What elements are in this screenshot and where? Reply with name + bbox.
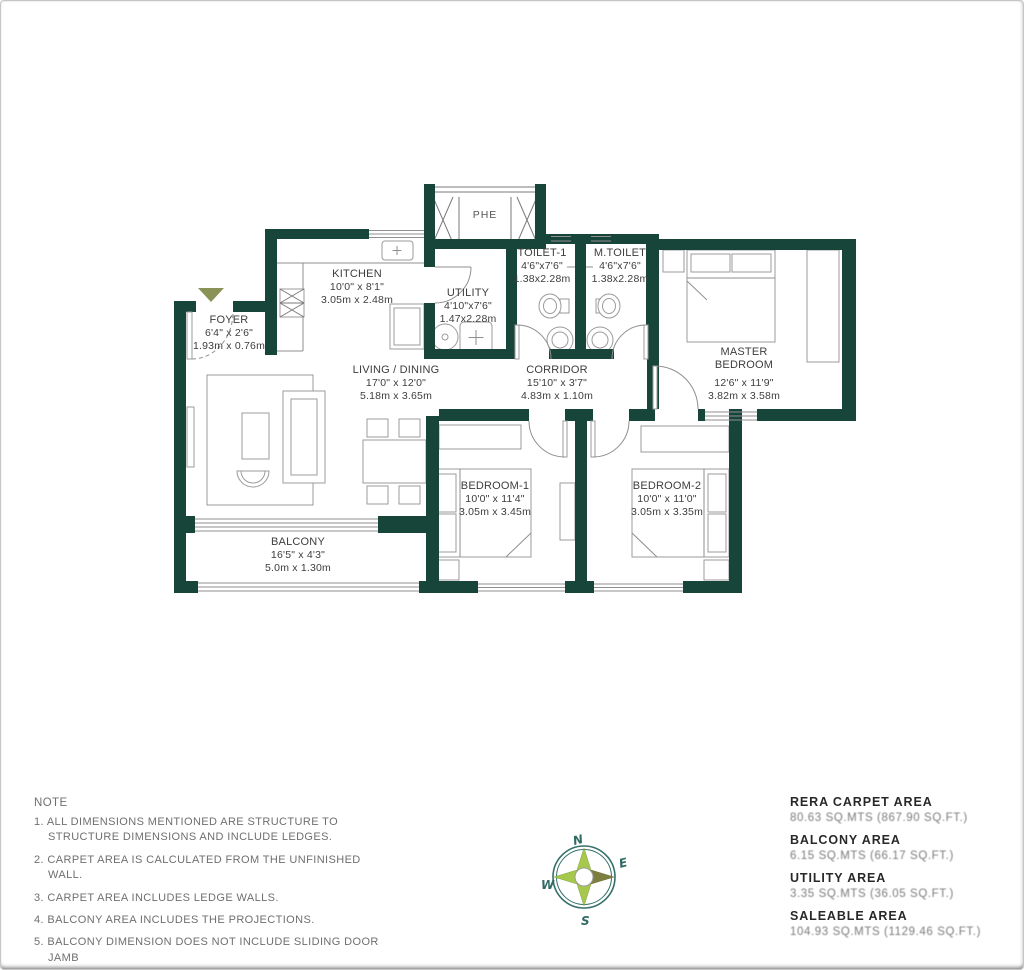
bedroom2-window: [594, 584, 683, 591]
room-label-utility: UTILITY 4'10"x7'6" 1.47x2.28m: [440, 287, 497, 326]
wardrobe: [641, 426, 729, 452]
shaft-label: PHE: [473, 209, 498, 221]
master-door: [655, 366, 698, 409]
room-label-living-dining: LIVING / DINING 17'0" x 12'0" 5.18m x 3.…: [353, 364, 440, 403]
room-label-foyer: FOYER 6'4" x 2'6" 1.93m x 0.76m: [193, 314, 265, 353]
room-label-bedroom1: BEDROOM-1 10'0" x 11'4" 3.05m x 3.45m: [459, 480, 531, 519]
sofa: [283, 391, 325, 483]
bedroom1-door: [529, 421, 565, 457]
side-table: [663, 250, 684, 272]
area-value-rera-carpet: 80.63 SQ.MTS (867.90 SQ.FT.): [790, 812, 1016, 824]
notes-block: NOTE 1. ALL DIMENSIONS MENTIONED ARE STR…: [34, 797, 386, 970]
area-label-balcony: BALCONY AREA: [790, 833, 1016, 847]
kitchen-window: [369, 231, 424, 238]
room-label-kitchen: KITCHEN 10'0" x 8'1" 3.05m x 2.48m: [321, 268, 393, 307]
wardrobe: [439, 425, 521, 449]
compass-west-label: W: [541, 878, 555, 892]
bedroom2-door: [593, 421, 629, 457]
armchair: [237, 471, 269, 487]
balcony-railing: [198, 583, 419, 591]
dining-chair: [367, 419, 388, 437]
area-value-balcony: 6.15 SQ.MTS (66.17 SQ.FT.): [790, 850, 1016, 862]
compass-east-label: E: [617, 855, 629, 871]
area-value-saleable: 104.93 SQ.MTS (1129.46 SQ.FT.): [790, 926, 1016, 938]
compass-rose: N E S W: [541, 832, 630, 928]
hob: [280, 289, 304, 317]
note-item: 2. CARPET AREA IS CALCULATED FROM THE UN…: [34, 853, 386, 884]
dining-chair: [367, 486, 388, 504]
area-statement: RERA CARPET AREA 80.63 SQ.MTS (867.90 SQ…: [790, 795, 1016, 947]
note-item: 3. CARPET AREA INCLUDES LEDGE WALLS.: [34, 891, 386, 906]
wardrobe: [807, 250, 839, 362]
wc: [539, 294, 561, 318]
notes-heading: NOTE: [34, 797, 386, 809]
side-table: [704, 560, 729, 580]
entry-arrow: [198, 288, 224, 302]
area-label-rera-carpet: RERA CARPET AREA: [790, 795, 1016, 809]
room-label-bedroom2: BEDROOM-2 10'0" x 11'0" 3.05m x 3.35m: [631, 480, 703, 519]
bed: [687, 250, 775, 342]
dining-chair: [399, 486, 420, 504]
note-item: 4. BALCONY AREA INCLUDES THE PROJECTIONS…: [34, 913, 386, 928]
tv-unit: [187, 407, 194, 467]
dining-furniture: [363, 419, 426, 504]
note-item: 1. ALL DIMENSIONS MENTIONED ARE STRUCTUR…: [34, 815, 386, 846]
room-label-balcony: BALCONY 16'5" x 4'3" 5.0m x 1.30m: [265, 536, 331, 575]
bedroom1-window: [478, 584, 565, 591]
wc: [598, 294, 620, 318]
balcony-sliding-door: [195, 519, 378, 531]
coffee-table: [242, 413, 269, 459]
living-room-furniture: [187, 375, 325, 505]
room-label-corridor: CORRIDOR 15'10" x 3'7" 4.83m x 1.10m: [521, 364, 593, 403]
area-label-saleable: SALEABLE AREA: [790, 909, 1016, 923]
entry-door-leaf: [187, 312, 192, 359]
utility-fixtures: [432, 322, 492, 353]
dining-chair: [399, 419, 420, 437]
room-label-mtoilet: M.TOILET 4'6"x7'6" 1.38x2.28m: [592, 247, 649, 286]
compass-south-label: S: [581, 914, 590, 928]
study-table: [560, 483, 575, 540]
compass-north-label: N: [571, 832, 584, 848]
floor-plan-page: N E S W PHE FOYER 6'4" x 2'6" 1.93m x 0.…: [0, 0, 1024, 970]
area-label-utility: UTILITY AREA: [790, 871, 1016, 885]
room-label-master-bedroom: MASTER BEDROOM 12'6" x 11'9" 3.82m x 3.5…: [708, 346, 780, 402]
refrigerator: [390, 304, 424, 349]
mtoilet-door: [612, 325, 646, 359]
note-item: 5. BALCONY DIMENSION DOES NOT INCLUDE SL…: [34, 935, 386, 966]
area-value-utility: 3.35 SQ.MTS (36.05 SQ.FT.): [790, 888, 1016, 900]
room-label-toilet1: TOILET-1 4'6"x7'6" 1.38x2.28m: [514, 247, 571, 286]
dining-table: [363, 440, 426, 483]
utility-sink: [432, 324, 458, 350]
toilet1-door: [517, 325, 551, 359]
